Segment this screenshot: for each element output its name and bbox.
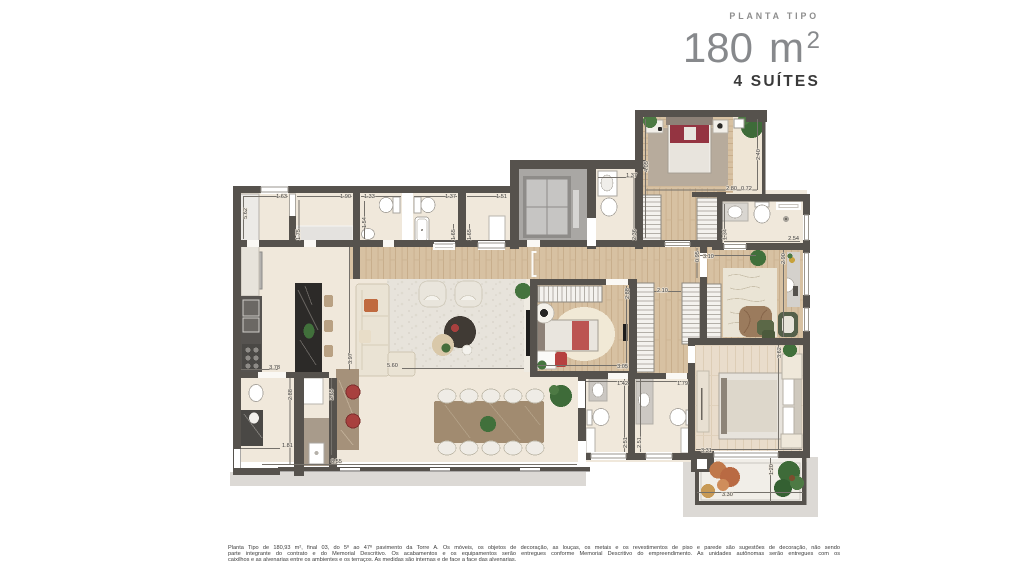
svg-text:1.75: 1.75	[296, 229, 302, 240]
svg-text:2.90: 2.90	[781, 253, 787, 264]
svg-text:3.31: 3.31	[701, 448, 712, 454]
svg-text:2.36: 2.36	[632, 229, 638, 240]
svg-text:1.37: 1.37	[445, 194, 456, 200]
svg-text:5.60: 5.60	[387, 363, 398, 369]
svg-text:3.10: 3.10	[703, 254, 714, 260]
svg-text:2.10: 2.10	[657, 288, 668, 294]
svg-text:1.51: 1.51	[496, 194, 507, 200]
svg-text:5.62: 5.62	[243, 208, 249, 219]
svg-text:1.65: 1.65	[467, 229, 473, 240]
svg-text:1.90: 1.90	[340, 194, 351, 200]
svg-text:PLANTA TIPO: PLANTA TIPO	[729, 11, 819, 21]
svg-text:4.05: 4.05	[644, 161, 650, 172]
svg-text:3.30: 3.30	[722, 492, 733, 498]
svg-text:2: 2	[807, 27, 820, 54]
svg-text:1.33: 1.33	[364, 194, 375, 200]
svg-text:8.55: 8.55	[331, 459, 342, 465]
svg-text:180: 180	[683, 24, 753, 71]
svg-text:1.54: 1.54	[362, 217, 368, 228]
svg-text:1.65: 1.65	[451, 229, 457, 240]
svg-text:1.63: 1.63	[276, 194, 287, 200]
svg-text:0.95: 0.95	[695, 251, 701, 262]
svg-text:3.62: 3.62	[777, 347, 783, 358]
svg-text:2.88: 2.88	[288, 389, 294, 400]
svg-text:1.81: 1.81	[282, 443, 293, 449]
svg-text:2.51: 2.51	[637, 437, 643, 448]
svg-text:1.37: 1.37	[626, 173, 637, 179]
svg-text:3.05: 3.05	[617, 364, 628, 370]
svg-text:2.40: 2.40	[756, 149, 762, 160]
svg-text:1.34: 1.34	[723, 229, 729, 240]
svg-text:0.72: 0.72	[741, 186, 752, 192]
svg-text:4 SUÍTES: 4 SUÍTES	[733, 73, 820, 90]
svg-text:1.79: 1.79	[677, 381, 688, 387]
svg-text:2.51: 2.51	[623, 437, 629, 448]
svg-text:m: m	[769, 24, 804, 71]
svg-text:2.54: 2.54	[788, 236, 799, 242]
svg-text:1.42: 1.42	[617, 381, 628, 387]
svg-text:3.78: 3.78	[269, 365, 280, 371]
svg-text:1.20: 1.20	[769, 464, 775, 475]
svg-text:2.65: 2.65	[329, 389, 335, 400]
svg-text:2.88: 2.88	[625, 288, 631, 299]
svg-text:3.97: 3.97	[348, 353, 354, 364]
svg-text:2.80: 2.80	[726, 186, 737, 192]
